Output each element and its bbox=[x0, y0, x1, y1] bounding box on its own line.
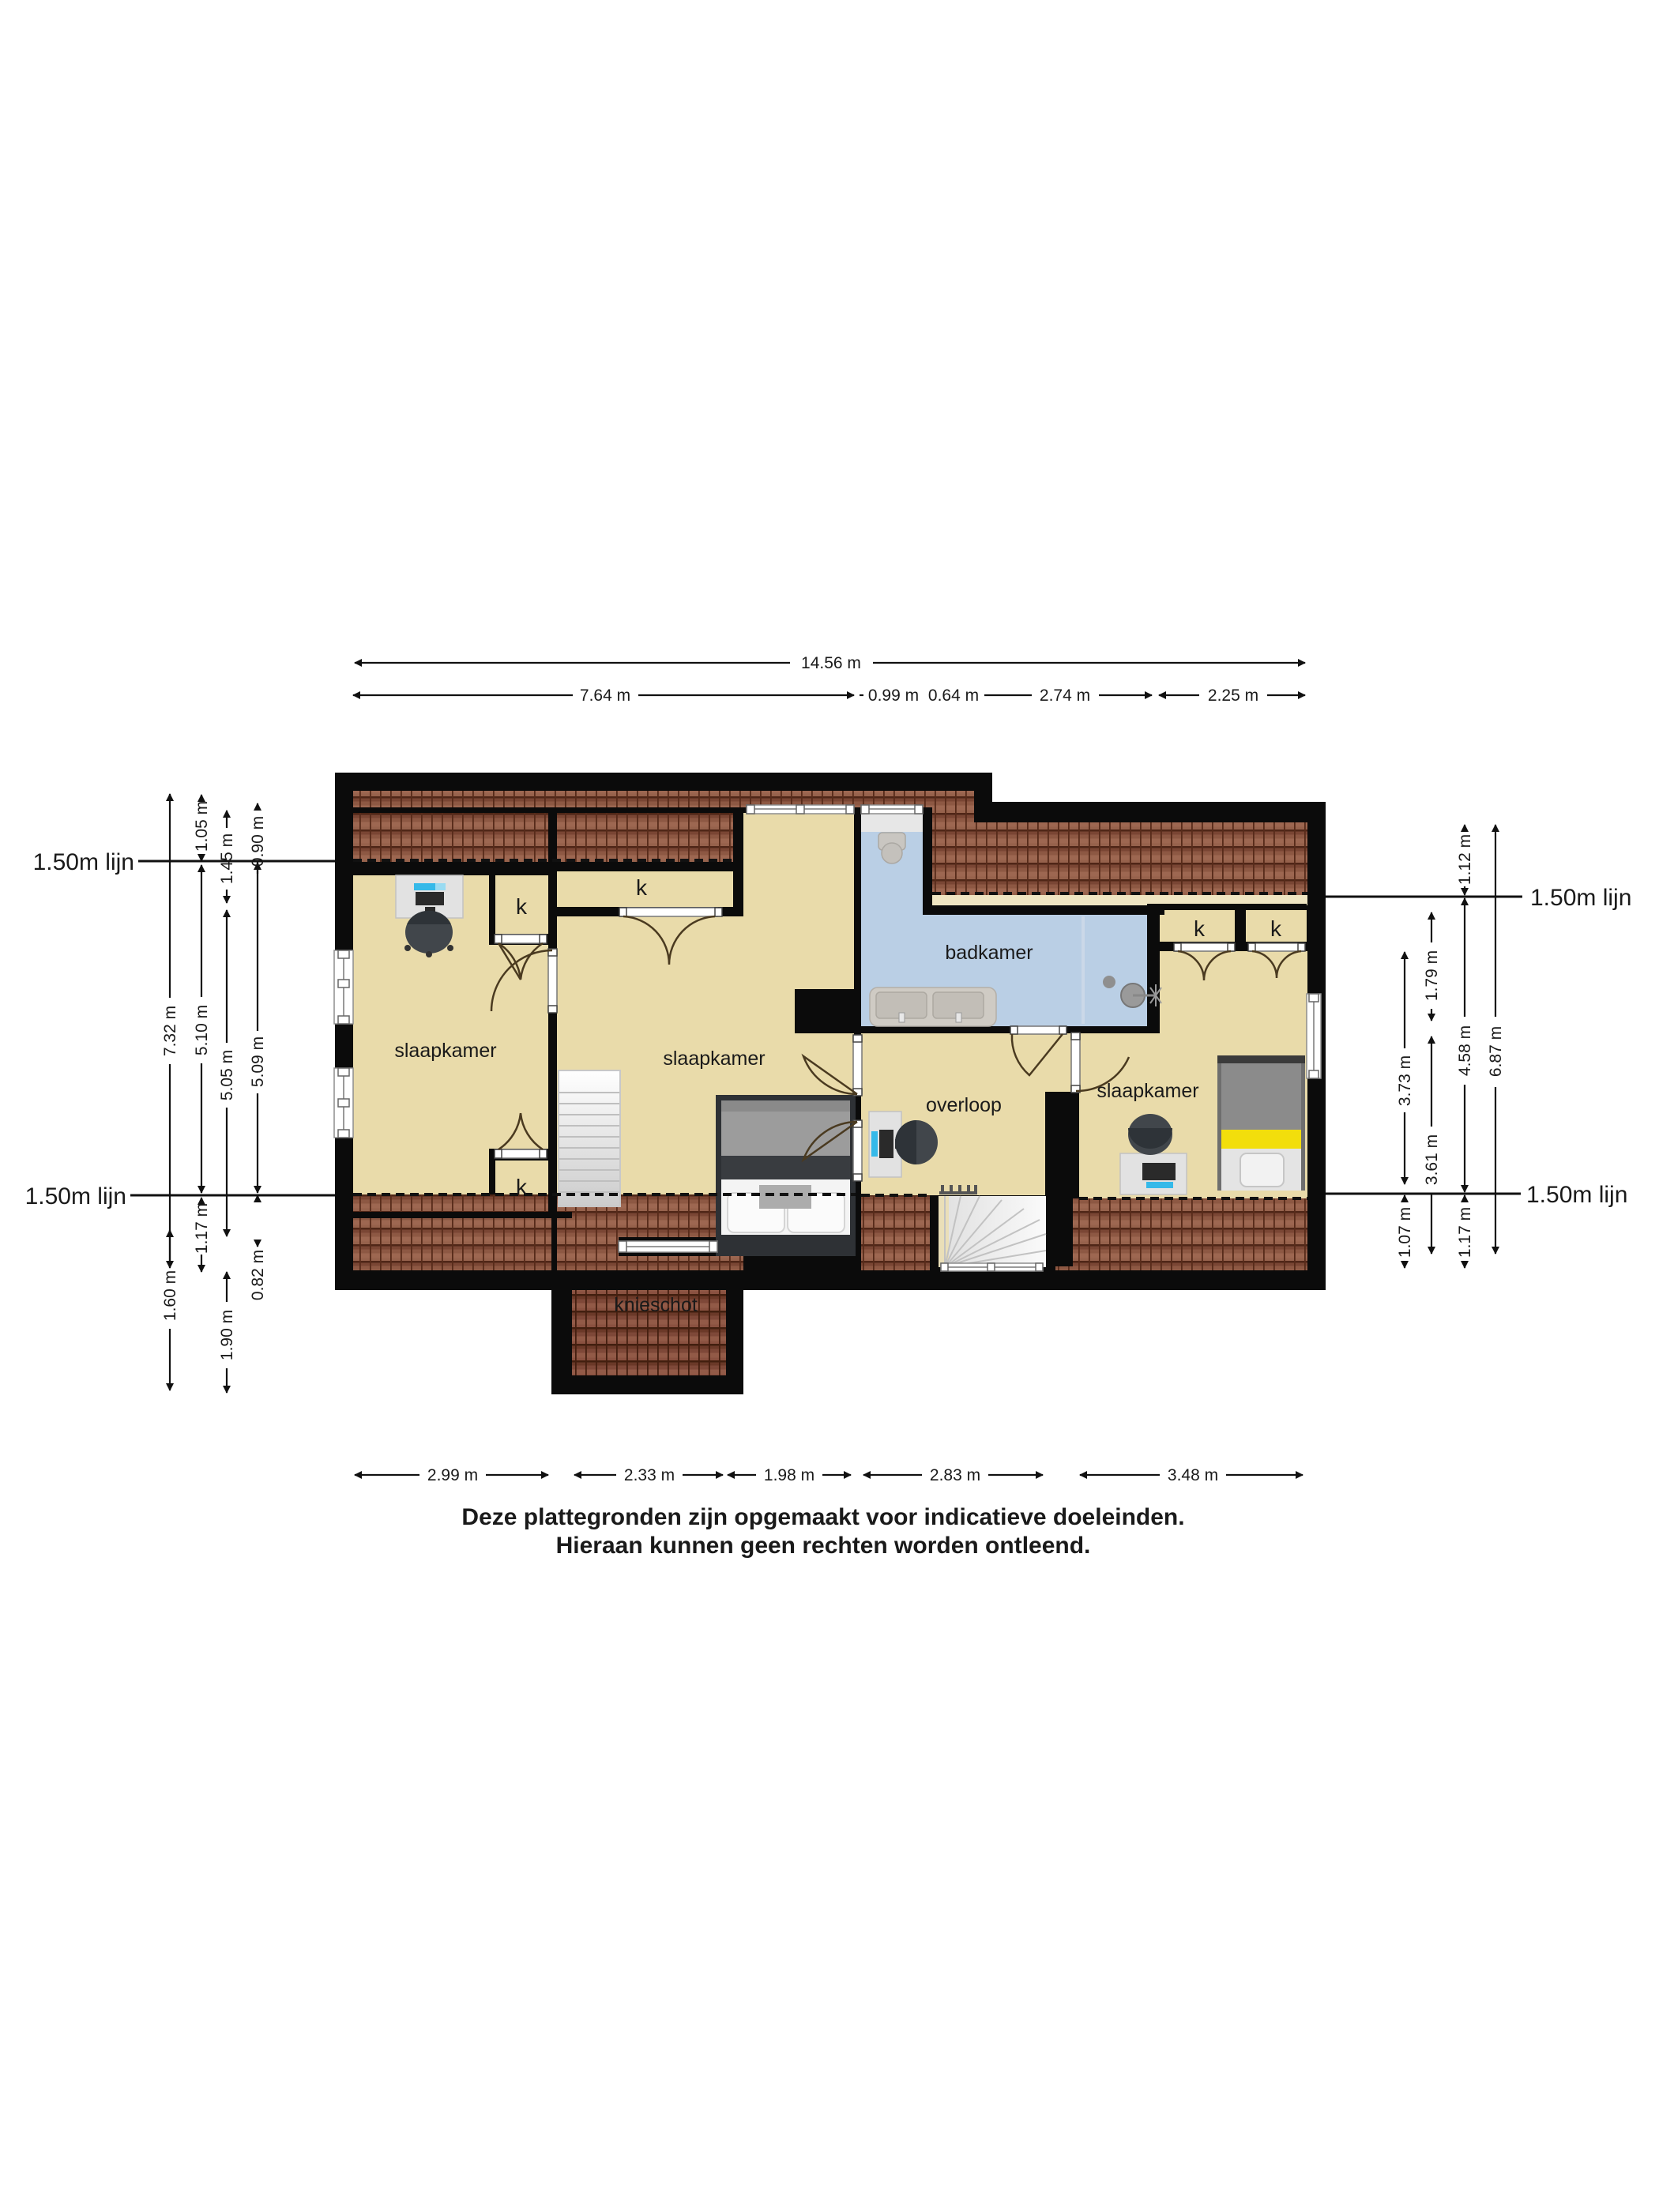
svg-text:1.98 m: 1.98 m bbox=[764, 1466, 814, 1484]
svg-text:4.58 m: 4.58 m bbox=[1456, 1025, 1474, 1076]
svg-text:1.50m lijn: 1.50m lijn bbox=[33, 849, 134, 875]
svg-text:0.99 m: 0.99 m bbox=[868, 687, 919, 705]
svg-text:0.64 m: 0.64 m bbox=[928, 687, 979, 705]
svg-text:1.50m lijn: 1.50m lijn bbox=[1526, 1182, 1627, 1208]
svg-text:5.09 m: 5.09 m bbox=[249, 1036, 267, 1087]
svg-text:6.87 m: 6.87 m bbox=[1487, 1026, 1505, 1077]
svg-text:k: k bbox=[636, 875, 648, 900]
svg-text:3.48 m: 3.48 m bbox=[1168, 1466, 1218, 1484]
svg-text:1.45 m: 1.45 m bbox=[218, 833, 236, 884]
svg-text:0.82 m: 0.82 m bbox=[249, 1250, 267, 1300]
svg-text:1.79 m: 1.79 m bbox=[1423, 950, 1441, 1001]
svg-text:1.60 m: 1.60 m bbox=[161, 1270, 179, 1321]
svg-text:7.64 m: 7.64 m bbox=[580, 687, 630, 705]
svg-text:slaapkamer: slaapkamer bbox=[1097, 1080, 1198, 1102]
svg-text:1.50m lijn: 1.50m lijn bbox=[25, 1183, 126, 1209]
svg-text:7.32 m: 7.32 m bbox=[161, 1006, 179, 1056]
svg-text:k: k bbox=[1270, 916, 1282, 941]
svg-text:k: k bbox=[516, 894, 528, 919]
svg-text:1.05 m: 1.05 m bbox=[193, 801, 211, 852]
svg-text:Hieraan kunnen geen rechten wo: Hieraan kunnen geen rechten worden ontle… bbox=[556, 1533, 1091, 1559]
svg-text:overloop: overloop bbox=[926, 1094, 1002, 1116]
svg-text:Deze plattegronden zijn opgema: Deze plattegronden zijn opgemaakt voor i… bbox=[461, 1504, 1184, 1530]
svg-text:1.50m lijn: 1.50m lijn bbox=[1530, 885, 1631, 911]
svg-text:5.10 m: 5.10 m bbox=[193, 1005, 211, 1055]
svg-text:1.17 m: 1.17 m bbox=[1456, 1207, 1474, 1258]
svg-text:3.61 m: 3.61 m bbox=[1423, 1134, 1441, 1185]
svg-text:1.17 m: 1.17 m bbox=[193, 1203, 211, 1254]
svg-text:k: k bbox=[516, 1175, 528, 1199]
svg-text:badkamer: badkamer bbox=[945, 942, 1033, 964]
svg-text:1.12 m: 1.12 m bbox=[1456, 834, 1474, 885]
svg-text:slaapkamer: slaapkamer bbox=[663, 1048, 765, 1070]
svg-text:slaapkamer: slaapkamer bbox=[394, 1040, 496, 1062]
svg-text:0.90 m: 0.90 m bbox=[249, 816, 267, 867]
svg-text:1.90 m: 1.90 m bbox=[218, 1310, 236, 1360]
svg-text:2.33 m: 2.33 m bbox=[624, 1466, 675, 1484]
svg-text:k: k bbox=[1194, 916, 1206, 941]
svg-text:2.83 m: 2.83 m bbox=[930, 1466, 980, 1484]
svg-text:14.56 m: 14.56 m bbox=[801, 654, 861, 672]
svg-text:2.99 m: 2.99 m bbox=[427, 1466, 478, 1484]
svg-text:3.73 m: 3.73 m bbox=[1396, 1055, 1414, 1106]
svg-text:knieschot: knieschot bbox=[614, 1294, 698, 1316]
svg-text:2.74 m: 2.74 m bbox=[1040, 687, 1090, 705]
svg-text:2.25 m: 2.25 m bbox=[1208, 687, 1258, 705]
svg-text:5.05 m: 5.05 m bbox=[218, 1050, 236, 1100]
svg-text:1.07 m: 1.07 m bbox=[1396, 1207, 1414, 1258]
